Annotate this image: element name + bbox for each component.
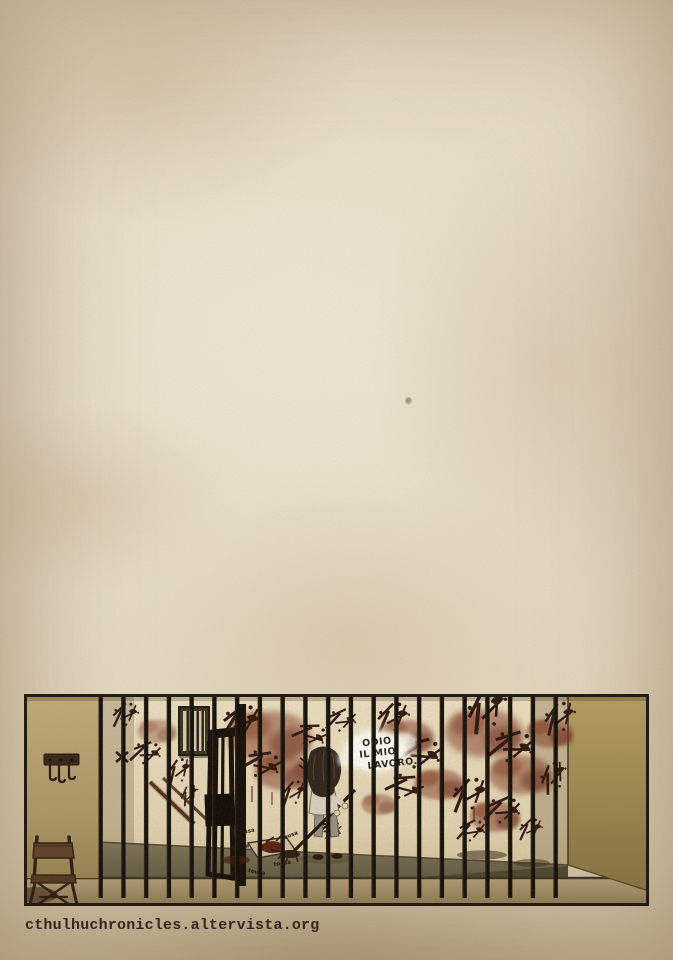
comic-page: tousa tousa tousa tousa tousa [0, 0, 673, 960]
paper-stain-speck [405, 397, 412, 405]
panel-texture [24, 694, 649, 906]
site-url: cthulhuchronicles.altervista.org [25, 916, 319, 936]
comic-panel: tousa tousa tousa tousa tousa [24, 694, 649, 906]
jail-cell-scene: tousa tousa tousa tousa tousa [24, 694, 649, 906]
